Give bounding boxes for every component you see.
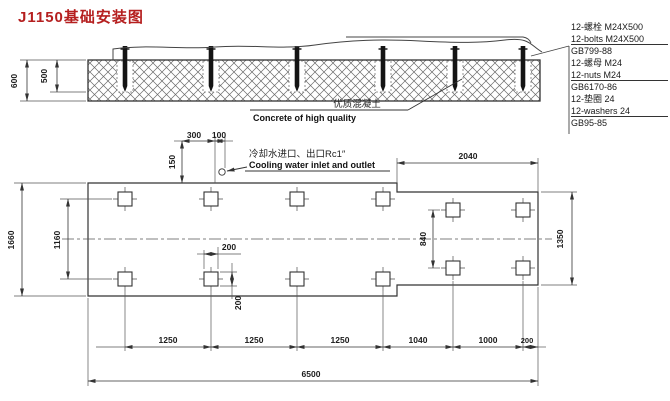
parts-line: GB799-88 [571, 45, 668, 57]
dim-label-1660: 1660 [6, 230, 16, 249]
dim-label-pocket-width: 200 [222, 242, 236, 252]
dim-label-bottom-3: 1250 [331, 335, 350, 345]
concrete-foundation-section [88, 60, 540, 101]
dim-label-840: 840 [418, 232, 428, 246]
parts-list: 12-螺栓 M24X500 12-bolts M24X500 GB799-88 … [571, 21, 668, 129]
cooling-note-en: Cooling water inlet and outlet [249, 160, 375, 170]
dim-label-6500: 6500 [302, 369, 321, 379]
parts-line: 12-bolts M24X500 [571, 33, 668, 45]
parts-line: 12-washers 24 [571, 105, 668, 117]
dim-label-bottom-4: 1040 [409, 335, 428, 345]
dim-label-bottom-6: 200 [521, 336, 534, 345]
parts-line: 12-螺母 M24 [571, 57, 668, 69]
cooling-note-leader [227, 167, 247, 171]
cooling-water-point [219, 169, 225, 175]
drawing-canvas: 600 500 优质混凝土 Concrete of high quality [0, 0, 670, 401]
dim-label-600: 600 [9, 74, 19, 88]
concrete-note-cn: 优质混凝土 [333, 98, 381, 110]
dim-label-300: 300 [187, 130, 201, 140]
dim-label-bottom-1: 1250 [159, 335, 178, 345]
bottom-dimension-chain: 1250 1250 1250 1040 1000 200 [96, 335, 546, 347]
section-view: 600 500 优质混凝土 Concrete of high quality [9, 37, 569, 134]
dim-label-bottom-2: 1250 [245, 335, 264, 345]
plan-view: 1660 1160 2040 1350 840 300 [6, 130, 577, 386]
cooling-note-cn: 冷却水进口、出口Rc1″ [249, 148, 346, 160]
dim-label-1160: 1160 [52, 231, 62, 250]
parts-line: 12-垫圈 24 [571, 93, 668, 105]
parts-line: 12-nuts M24 [571, 69, 668, 81]
dim-label-500: 500 [39, 69, 49, 83]
foundation-drawing-page: J1150基础安装图 [0, 0, 670, 401]
parts-line: GB95-85 [571, 117, 668, 129]
cooling-water-callout: 300 100 150 冷却水进口、出口Rc1″ Cooling water i… [167, 130, 390, 183]
dim-label-pocket-height: 200 [233, 296, 243, 310]
parts-line: GB6170-86 [571, 81, 668, 93]
dim-label-1350: 1350 [555, 229, 565, 248]
parts-leader-line [531, 46, 569, 56]
section-extension-lines [20, 60, 86, 101]
break-line [113, 39, 542, 60]
foundation-plan-outline [88, 183, 538, 296]
concrete-note-en: Concrete of high quality [253, 113, 356, 123]
dim-label-2040: 2040 [459, 151, 478, 161]
parts-line: 12-螺栓 M24X500 [571, 21, 668, 33]
dim-label-100: 100 [212, 130, 226, 140]
dim-label-150: 150 [167, 155, 177, 169]
dim-label-bottom-5: 1000 [479, 335, 498, 345]
